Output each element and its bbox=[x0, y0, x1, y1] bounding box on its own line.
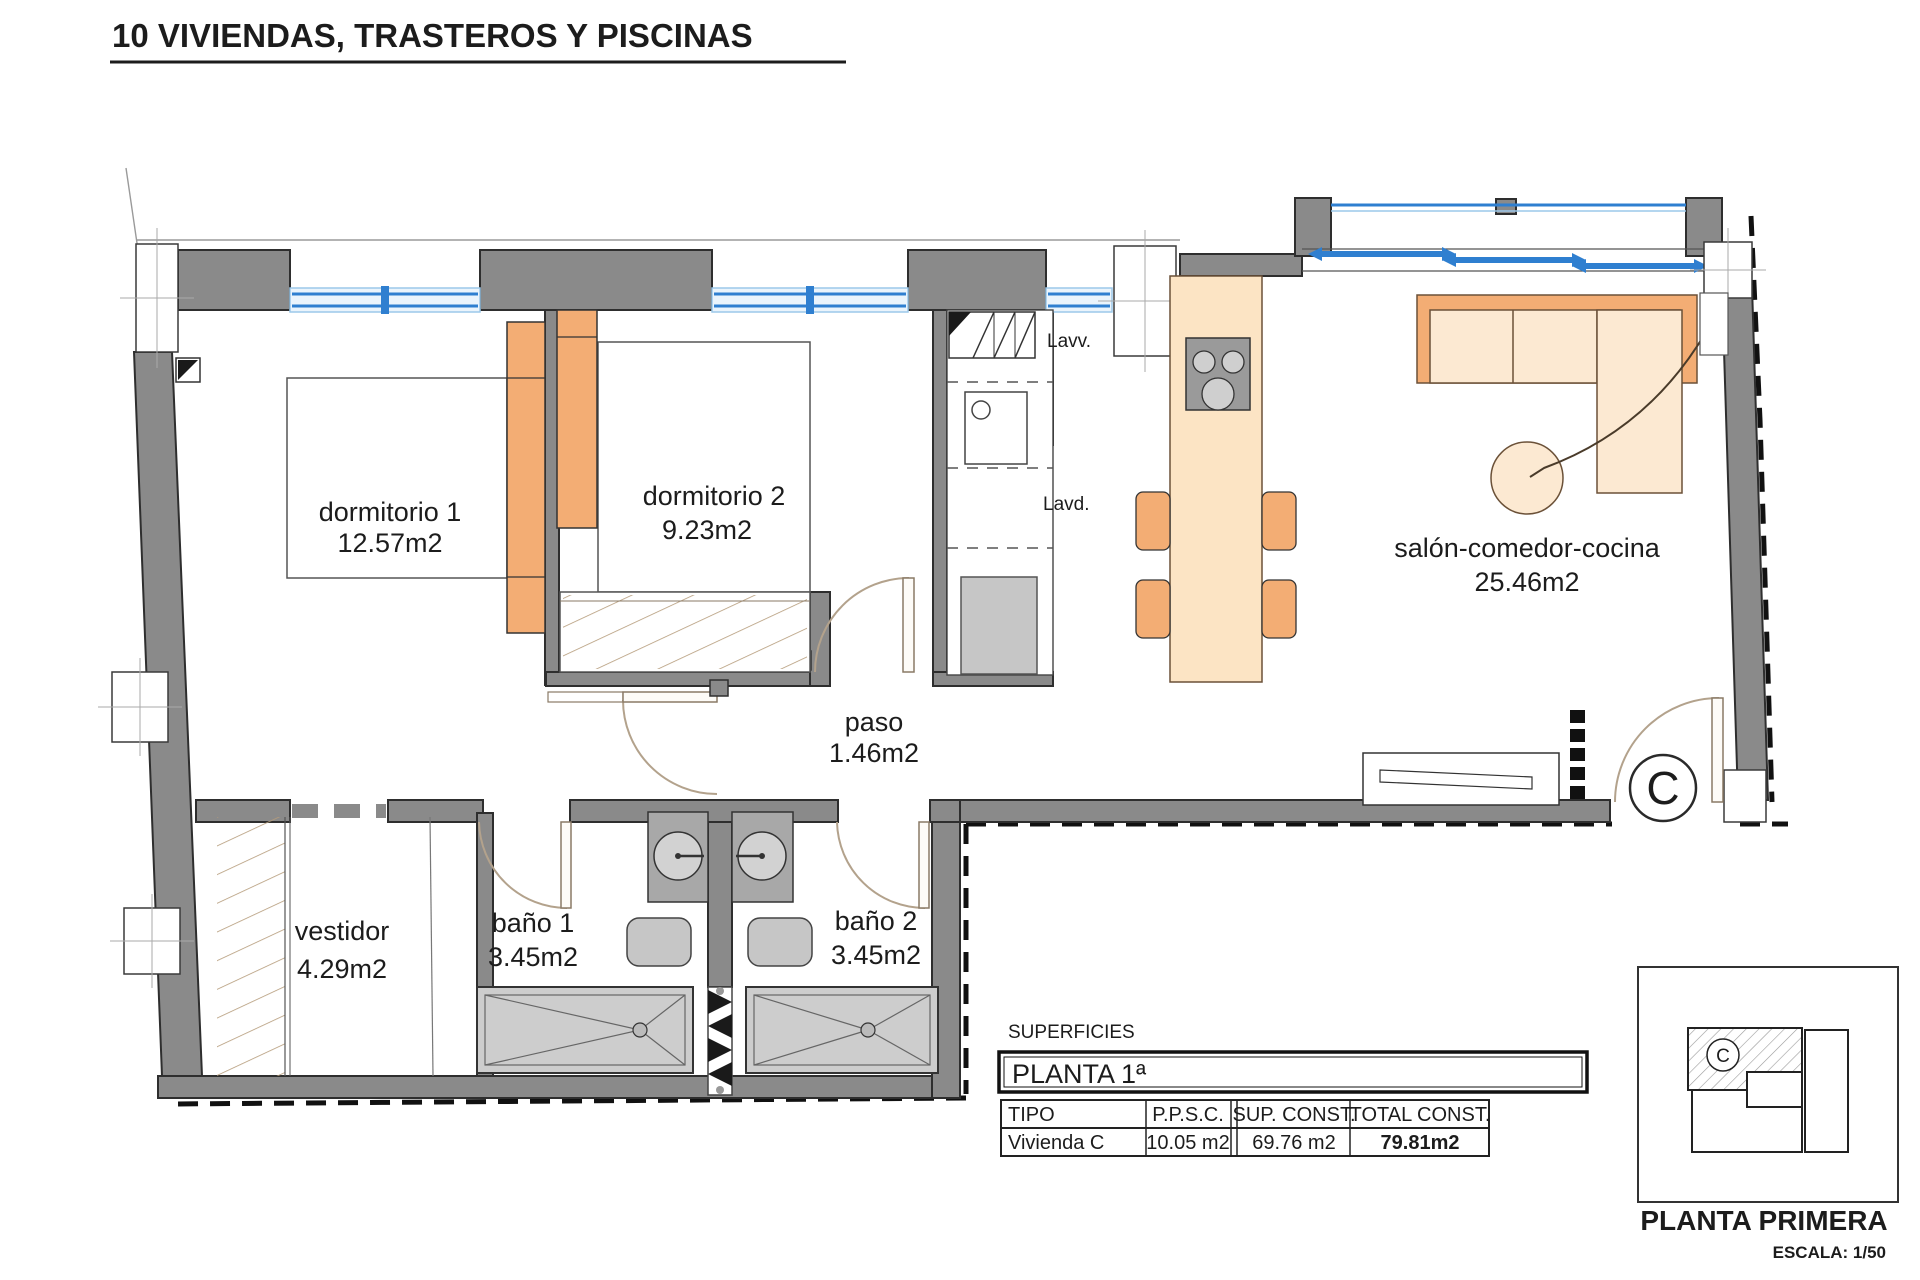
kitchen-island bbox=[1170, 276, 1262, 682]
window-mullion bbox=[381, 286, 389, 314]
cell-total-const: 79.81m2 bbox=[1381, 1132, 1460, 1154]
room-label-vestidor: vestidor bbox=[295, 916, 390, 946]
col-header-tipo: TIPO bbox=[1008, 1104, 1055, 1126]
vestidor-wardrobe bbox=[217, 817, 433, 1076]
bano2-vanity bbox=[732, 812, 793, 902]
floor-plan-sheet: 10 VIVIENDAS, TRASTEROS Y PISCINAS bbox=[0, 0, 1920, 1280]
label-lavd: Lavd. bbox=[1043, 494, 1089, 515]
col-header-total-const: TOTAL CONST. bbox=[1350, 1104, 1491, 1126]
cell-ppsc: 10.05 m2 bbox=[1146, 1132, 1229, 1154]
key-plan-scale: ESCALA: 1/50 bbox=[1773, 1243, 1886, 1262]
room-label-paso: paso bbox=[845, 707, 904, 737]
window-dorm2 bbox=[712, 286, 908, 314]
cell-sup-const: 69.76 m2 bbox=[1252, 1132, 1335, 1154]
bathroom-party-wall bbox=[708, 822, 732, 987]
toilet-icon bbox=[627, 918, 691, 966]
dorm2-closet bbox=[560, 592, 810, 672]
bano2-door bbox=[837, 822, 929, 908]
room-area-bano2: 3.45m2 bbox=[831, 940, 921, 970]
room-area-dorm1: 12.57m2 bbox=[337, 528, 442, 558]
vent-shaft-hatch bbox=[949, 312, 1035, 358]
room-area-bano1: 3.45m2 bbox=[488, 942, 578, 972]
laundry-counter bbox=[961, 577, 1037, 674]
dorm2-closet-wall bbox=[546, 672, 830, 686]
top-wall-segment bbox=[178, 250, 290, 310]
side-table bbox=[1491, 442, 1563, 514]
terrace-corner-pillar bbox=[1295, 198, 1331, 256]
floor-plan-canvas: 10 VIVIENDAS, TRASTEROS Y PISCINAS bbox=[0, 0, 1920, 1280]
table-caption: SUPERFICIES bbox=[1008, 1022, 1135, 1043]
utility-column-left-wall bbox=[933, 310, 947, 686]
room-area-vestidor: 4.29m2 bbox=[297, 954, 387, 984]
wall-shelf bbox=[1700, 293, 1728, 355]
page-title: 10 VIVIENDAS, TRASTEROS Y PISCINAS bbox=[112, 17, 753, 54]
room-area-salon: 25.46m2 bbox=[1474, 567, 1579, 597]
vent-shaft-between-showers bbox=[708, 987, 732, 1095]
burner-icon bbox=[1222, 351, 1244, 373]
drain-icon bbox=[861, 1023, 875, 1037]
bottom-wall bbox=[158, 1076, 960, 1098]
burner-icon bbox=[1202, 378, 1234, 410]
terrace bbox=[1302, 205, 1708, 273]
sliding-glass-wall bbox=[1302, 247, 1708, 273]
label-lavv: Lavv. bbox=[1047, 331, 1091, 352]
entry-unit-badge: C bbox=[1630, 755, 1696, 821]
window-dorm1 bbox=[290, 286, 480, 314]
mid-wall-segment bbox=[930, 800, 960, 822]
dorm2-bed bbox=[598, 342, 810, 592]
mid-wall-segment bbox=[388, 800, 483, 822]
bano2-shower-tray bbox=[746, 987, 938, 1073]
cell-tipo: Vivienda C bbox=[1008, 1132, 1104, 1154]
window-kitchen bbox=[1046, 288, 1112, 312]
dorm2-wardrobe bbox=[557, 310, 597, 528]
washer-appliance bbox=[965, 392, 1027, 464]
dorm1-wardrobe bbox=[507, 322, 545, 633]
window-mullion bbox=[806, 286, 814, 314]
key-plan: C PLANTA PRIMERA ESCALA: 1/50 bbox=[1638, 967, 1898, 1262]
burner-icon bbox=[1193, 351, 1215, 373]
floor-header: PLANTA 1ª bbox=[1012, 1059, 1147, 1089]
room-label-salon: salón-comedor-cocina bbox=[1394, 533, 1661, 563]
bano1-vanity bbox=[648, 812, 708, 902]
utility-column bbox=[947, 310, 1053, 675]
room-area-dorm2: 9.23m2 bbox=[662, 515, 752, 545]
pillar bbox=[1724, 770, 1766, 822]
key-plan-title: PLANTA PRIMERA bbox=[1640, 1205, 1887, 1236]
room-label-dorm2: dormitorio 2 bbox=[643, 481, 786, 511]
drain-icon bbox=[633, 1023, 647, 1037]
top-wall-segment bbox=[480, 250, 712, 310]
right-wall bbox=[1722, 286, 1768, 800]
toilet-icon bbox=[748, 918, 812, 966]
sheet-title: 10 VIVIENDAS, TRASTEROS Y PISCINAS bbox=[110, 17, 846, 62]
unit-letter: C bbox=[1646, 762, 1679, 814]
key-plan-unit-letter: C bbox=[1716, 1046, 1730, 1067]
room-label-dorm1: dormitorio 1 bbox=[319, 497, 462, 527]
col-header-sup-const: SUP. CONST. bbox=[1233, 1104, 1356, 1126]
sofa-chaise bbox=[1597, 310, 1682, 493]
bano1-shower-tray bbox=[477, 987, 693, 1073]
tv-sideboard bbox=[1363, 753, 1559, 805]
col-header-ppsc: P.P.S.C. bbox=[1152, 1104, 1224, 1126]
section-marker-dashes bbox=[1570, 710, 1585, 799]
surface-table: SUPERFICIES PLANTA 1ª TIPO P.P.S.C. SUP.… bbox=[999, 1022, 1587, 1156]
paso-door bbox=[548, 680, 728, 794]
room-label-bano2: baño 2 bbox=[835, 906, 918, 936]
top-wall-segment bbox=[908, 250, 1046, 310]
terrace-step-wall bbox=[1180, 254, 1302, 276]
room-label-bano1: baño 1 bbox=[492, 908, 575, 938]
room-area-paso: 1.46m2 bbox=[829, 738, 919, 768]
